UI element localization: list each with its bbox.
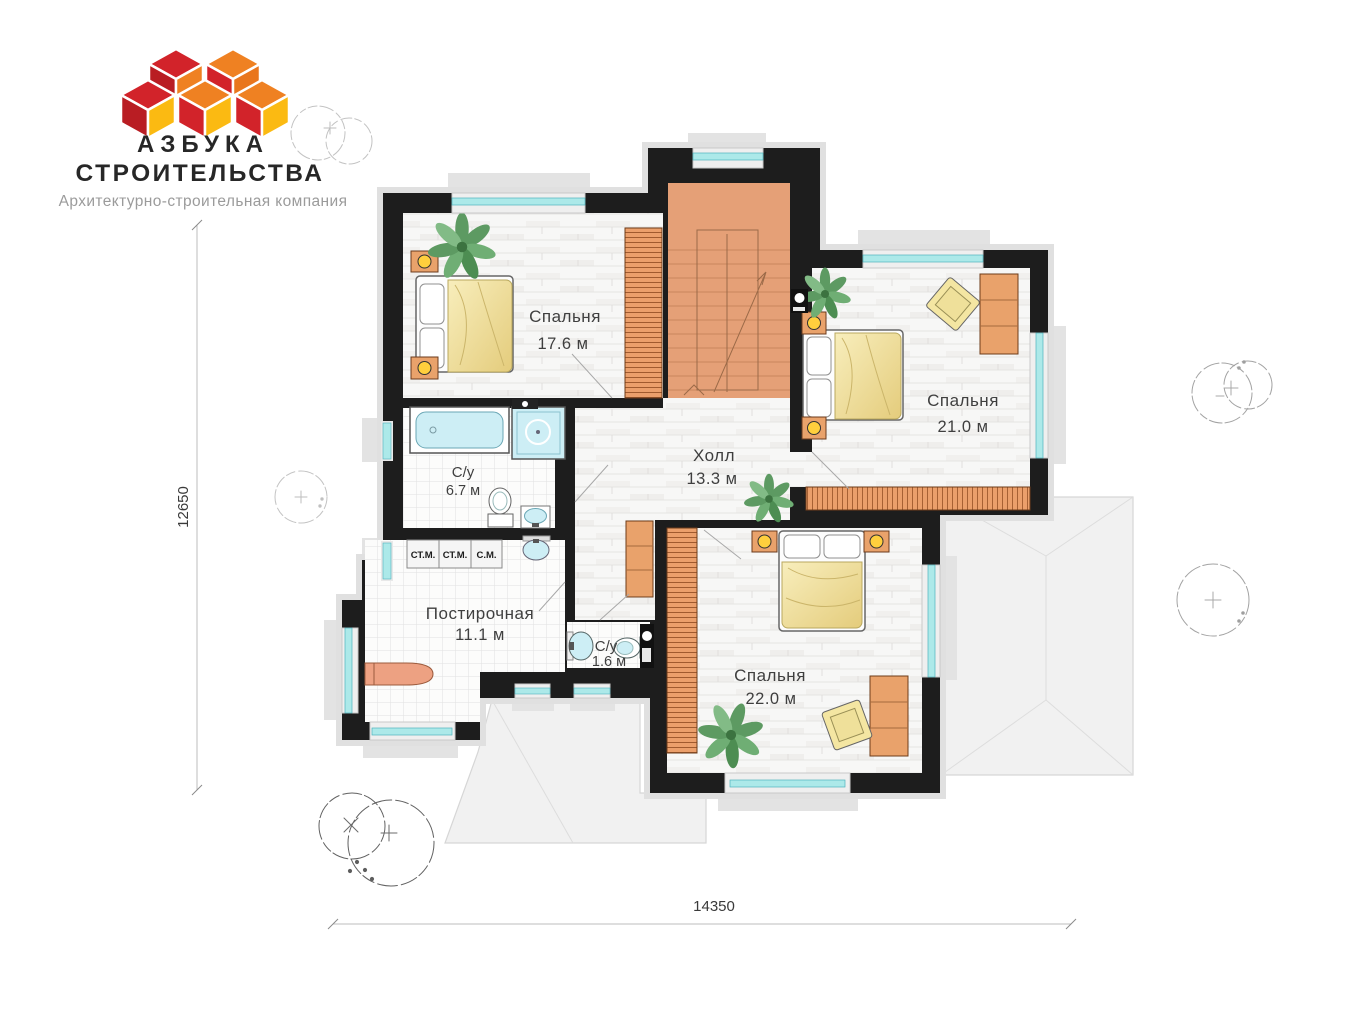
- wardrobe-icon: [667, 528, 697, 753]
- sink-icon: [523, 536, 550, 560]
- window-icon: [381, 541, 393, 581]
- staircase: [668, 183, 790, 398]
- window-icon: [693, 148, 763, 168]
- logo-title-line1: АЗБУКА: [137, 131, 269, 158]
- sink-icon: [521, 506, 550, 528]
- dimension-bottom: 14350: [328, 898, 1076, 929]
- tree-icon: [1192, 361, 1272, 423]
- hall-cabinet-icon: [626, 521, 653, 597]
- nightstand-icon: [802, 417, 826, 439]
- room-area-bedroom3: 22.0 м: [745, 690, 796, 708]
- window-icon: [574, 684, 610, 698]
- dryer-label: С.М.: [476, 550, 496, 561]
- toilet-icon: [488, 488, 513, 527]
- floor-plan-canvas: 12650 14350: [0, 0, 1360, 1020]
- washer-label: СТ.М.: [411, 550, 436, 561]
- bathtub-icon: [410, 407, 509, 453]
- window-icon: [370, 722, 455, 740]
- ironing-board-icon: [365, 663, 433, 685]
- bed-icon: [803, 330, 903, 420]
- roof-right: [941, 497, 1133, 775]
- tree-icon: [275, 471, 327, 523]
- tree-icon: [1177, 564, 1249, 636]
- room-label-wc: С/у: [595, 638, 618, 655]
- room-area-wc: 1.6 м: [592, 654, 626, 670]
- window-icon: [863, 250, 983, 268]
- wardrobe-icon: [806, 487, 1030, 510]
- room-area-bedroom2: 21.0 м: [937, 418, 988, 436]
- tv-icon: [640, 624, 654, 668]
- room-label-bedroom2: Спальня: [927, 391, 999, 410]
- sink-icon: [567, 632, 593, 660]
- window-icon: [725, 773, 850, 793]
- room-label-bedroom3: Спальня: [734, 666, 806, 685]
- window-icon: [342, 628, 358, 713]
- room-label-bedroom1: Спальня: [529, 307, 601, 326]
- window-icon: [922, 565, 940, 677]
- tree-icon: [291, 106, 372, 164]
- room-label-hall: Холл: [693, 446, 735, 465]
- nightstand-icon: [411, 357, 438, 379]
- shower-icon: [512, 399, 565, 459]
- nightstand-icon: [864, 531, 889, 552]
- dresser-icon: [980, 274, 1018, 354]
- dresser-icon: [870, 676, 908, 756]
- tv-icon: [791, 289, 808, 313]
- window-icon: [515, 684, 550, 698]
- logo-title-line2: СТРОИТЕЛЬСТВА: [76, 160, 325, 187]
- bed-icon: [779, 531, 865, 631]
- window-icon: [452, 193, 585, 213]
- room-label-bathroom: С/у: [452, 464, 475, 481]
- window-icon: [381, 421, 393, 461]
- company-logo: АЗБУКА СТРОИТЕЛЬСТВА Архитектурно-строит…: [59, 49, 348, 210]
- dimension-left: 12650: [175, 220, 202, 795]
- room-area-hall: 13.3 м: [686, 470, 737, 488]
- floor-plan-page: 12650 14350: [0, 0, 1360, 1020]
- washing-machines: СТ.М. СТ.М. С.М.: [407, 540, 502, 568]
- washer-label: СТ.М.: [443, 550, 468, 561]
- nightstand-icon: [752, 531, 777, 552]
- wardrobe-icon: [625, 228, 662, 398]
- window-icon: [1030, 333, 1048, 458]
- room-label-laundry: Постирочная: [426, 604, 534, 623]
- tree-icon: [319, 793, 434, 886]
- room-area-bedroom1: 17.6 м: [537, 335, 588, 353]
- logo-cubes-icon: [121, 49, 289, 138]
- dimension-height-label: 12650: [175, 486, 192, 528]
- room-area-bathroom: 6.7 м: [446, 483, 480, 499]
- dimension-width-label: 14350: [693, 898, 735, 915]
- room-area-laundry: 11.1 м: [455, 626, 505, 644]
- logo-subtitle: Архитектурно-строительная компания: [59, 193, 348, 210]
